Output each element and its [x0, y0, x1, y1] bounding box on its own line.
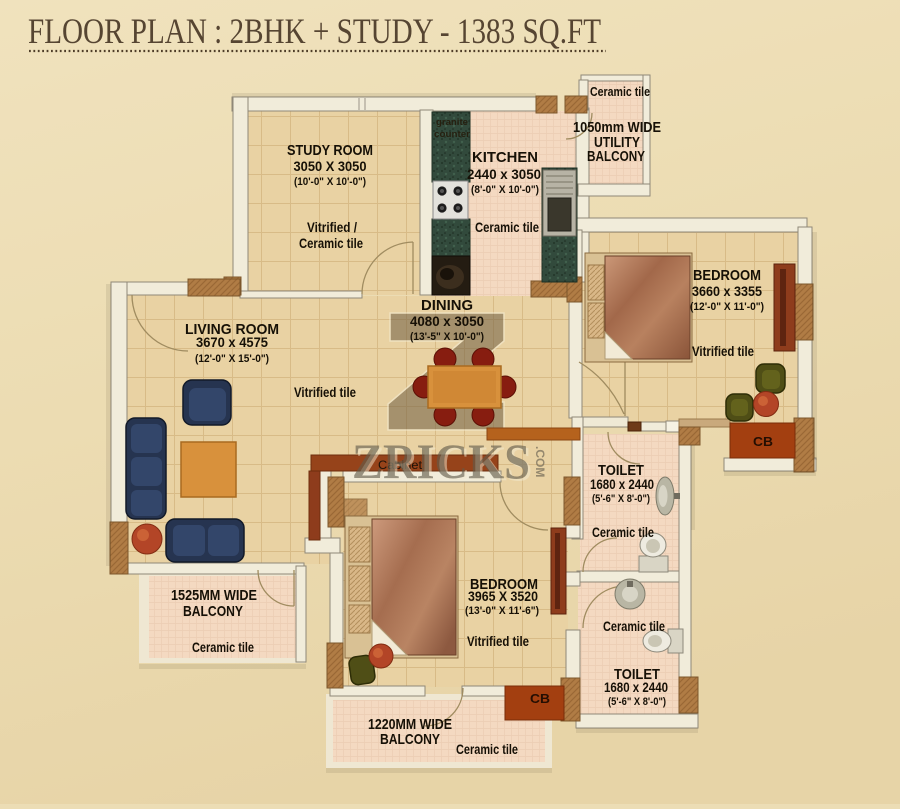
svg-text:(5'-6" X 8'-0"): (5'-6" X 8'-0"): [592, 493, 650, 505]
svg-text:Vitrified tile: Vitrified tile: [692, 343, 754, 359]
svg-text:Ceramic tile: Ceramic tile: [192, 639, 254, 655]
svg-text:(8'-0" X 10'-0"): (8'-0" X 10'-0"): [471, 184, 539, 196]
svg-text:Ceramic tile: Ceramic tile: [590, 85, 650, 99]
svg-text:3050 X 3050: 3050 X 3050: [294, 158, 367, 174]
svg-text:KITCHEN: KITCHEN: [472, 149, 538, 166]
svg-text:(13'-5" X 10'-0"): (13'-5" X 10'-0"): [410, 331, 484, 343]
svg-text:Ceramic tile: Ceramic tile: [603, 618, 665, 634]
svg-text:BALCONY: BALCONY: [380, 731, 440, 748]
svg-text:BALCONY: BALCONY: [183, 603, 243, 620]
svg-text:Vitrified /: Vitrified /: [307, 219, 357, 235]
svg-text:.COM: .COM: [533, 446, 547, 477]
svg-text:CB: CB: [753, 434, 773, 449]
svg-text:(13'-0" X 11'-6"): (13'-0" X 11'-6"): [465, 605, 539, 617]
svg-text:1050mm WIDE: 1050mm WIDE: [573, 120, 661, 136]
svg-text:2440 x 3050: 2440 x 3050: [467, 166, 541, 182]
svg-text:Ceramic tile: Ceramic tile: [475, 219, 539, 235]
svg-text:3660 x 3355: 3660 x 3355: [692, 283, 762, 299]
svg-text:Ceramic tile: Ceramic tile: [456, 741, 518, 757]
svg-text:3965 X 3520: 3965 X 3520: [468, 588, 538, 604]
svg-text:STUDY ROOM: STUDY ROOM: [287, 142, 373, 159]
svg-text:1680 x 2440: 1680 x 2440: [590, 476, 654, 492]
svg-text:Ceramic tile: Ceramic tile: [299, 235, 363, 251]
svg-text:FLOOR PLAN : 2BHK + STUDY - 13: FLOOR PLAN : 2BHK + STUDY - 1383 SQ.FT: [28, 11, 601, 51]
svg-text:(12'-0" X 15'-0"): (12'-0" X 15'-0"): [195, 353, 269, 365]
svg-text:BALCONY: BALCONY: [587, 149, 645, 165]
svg-text:BEDROOM: BEDROOM: [693, 267, 761, 284]
svg-text:CB: CB: [530, 691, 550, 706]
svg-text:DINING: DINING: [421, 297, 473, 314]
svg-text:1525MM WIDE: 1525MM WIDE: [171, 587, 257, 604]
svg-text:ZRICKS: ZRICKS: [352, 433, 530, 489]
svg-text:granite: granite: [436, 117, 468, 128]
svg-text:Vitrified tile: Vitrified tile: [467, 633, 529, 649]
svg-text:Ceramic tile: Ceramic tile: [592, 524, 654, 540]
svg-text:(12'-0" X 11'-0"): (12'-0" X 11'-0"): [690, 301, 764, 313]
svg-text:4080 x 3050: 4080 x 3050: [410, 313, 484, 329]
svg-text:3670 x 4575: 3670 x 4575: [196, 334, 268, 350]
svg-text:(5'-6" X 8'-0"): (5'-6" X 8'-0"): [608, 696, 666, 708]
svg-text:counter: counter: [434, 129, 470, 140]
svg-text:1680 x 2440: 1680 x 2440: [604, 679, 668, 695]
svg-text:(10'-0" X 10'-0"): (10'-0" X 10'-0"): [294, 176, 366, 188]
svg-text:Vitrified tile: Vitrified tile: [294, 384, 356, 400]
